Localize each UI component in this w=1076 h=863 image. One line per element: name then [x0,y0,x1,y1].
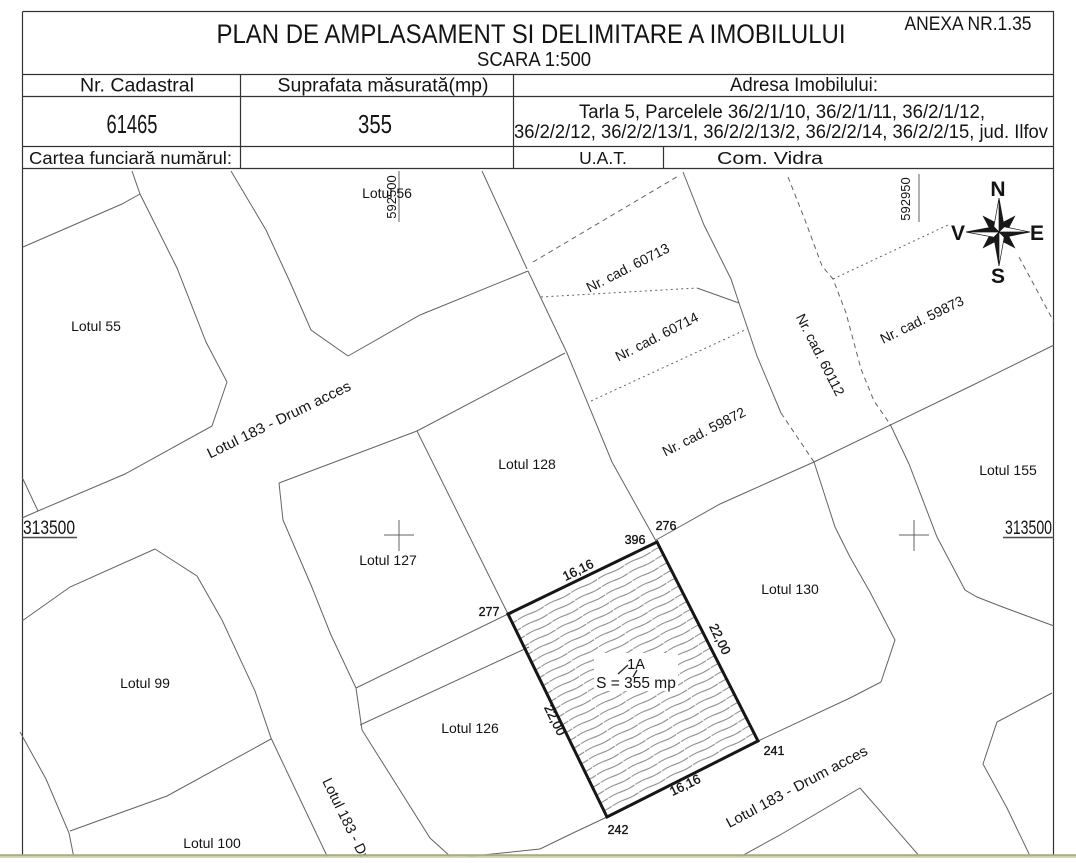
svg-text:PLAN DE AMPLASAMENT SI DELIMIT: PLAN DE AMPLASAMENT SI DELIMITARE A IMOB… [217,19,846,49]
svg-text:241: 241 [764,744,785,758]
svg-text:Lotul 128: Lotul 128 [498,456,556,472]
svg-text:355: 355 [358,109,392,139]
svg-text:V: V [951,222,965,245]
svg-text:Lotul 100: Lotul 100 [183,835,241,851]
svg-text:Cartea funciară numărul:: Cartea funciară numărul: [29,148,232,168]
svg-text:396: 396 [625,533,646,547]
svg-text:592500: 592500 [384,175,399,218]
svg-text:Lotul 155: Lotul 155 [979,462,1037,478]
svg-text:N: N [990,178,1005,201]
svg-text:Lotul 126: Lotul 126 [441,720,499,736]
svg-text:36/2/2/12, 36/2/2/13/1, 36/2/2: 36/2/2/12, 36/2/2/13/1, 36/2/2/13/2, 36/… [514,122,1048,143]
svg-text:276: 276 [656,519,677,533]
svg-text:61465: 61465 [107,109,158,139]
svg-text:Lotul 99: Lotul 99 [120,675,170,691]
svg-text:SCARA 1:500: SCARA 1:500 [477,48,591,71]
svg-text:Suprafata măsurată(mp): Suprafata măsurată(mp) [278,76,489,97]
svg-text:313500: 313500 [1005,518,1052,539]
svg-text:242: 242 [608,823,629,837]
svg-text:U.A.T.: U.A.T. [579,148,627,168]
svg-text:Lotul 127: Lotul 127 [359,552,417,568]
svg-text:313500: 313500 [23,518,75,539]
svg-text:Tarla 5, Parcelele 36/2/1/10,: Tarla 5, Parcelele 36/2/1/10, 36/2/1/11,… [579,102,985,123]
svg-text:S = 355 mp: S = 355 mp [596,675,676,692]
svg-text:Com. Vidra: Com. Vidra [717,148,823,168]
svg-text:E: E [1030,222,1044,245]
svg-text:592950: 592950 [898,177,913,220]
svg-text:Lotul 130: Lotul 130 [761,581,819,597]
svg-text:S: S [991,265,1005,288]
svg-text:ANEXA NR.1.35: ANEXA NR.1.35 [905,14,1032,35]
svg-text:1A: 1A [627,657,645,673]
svg-text:277: 277 [479,605,500,619]
svg-text:Adresa Imobilului:: Adresa Imobilului: [730,75,878,96]
svg-text:Nr. Cadastral: Nr. Cadastral [80,76,194,97]
svg-text:Lotul 55: Lotul 55 [71,318,121,334]
